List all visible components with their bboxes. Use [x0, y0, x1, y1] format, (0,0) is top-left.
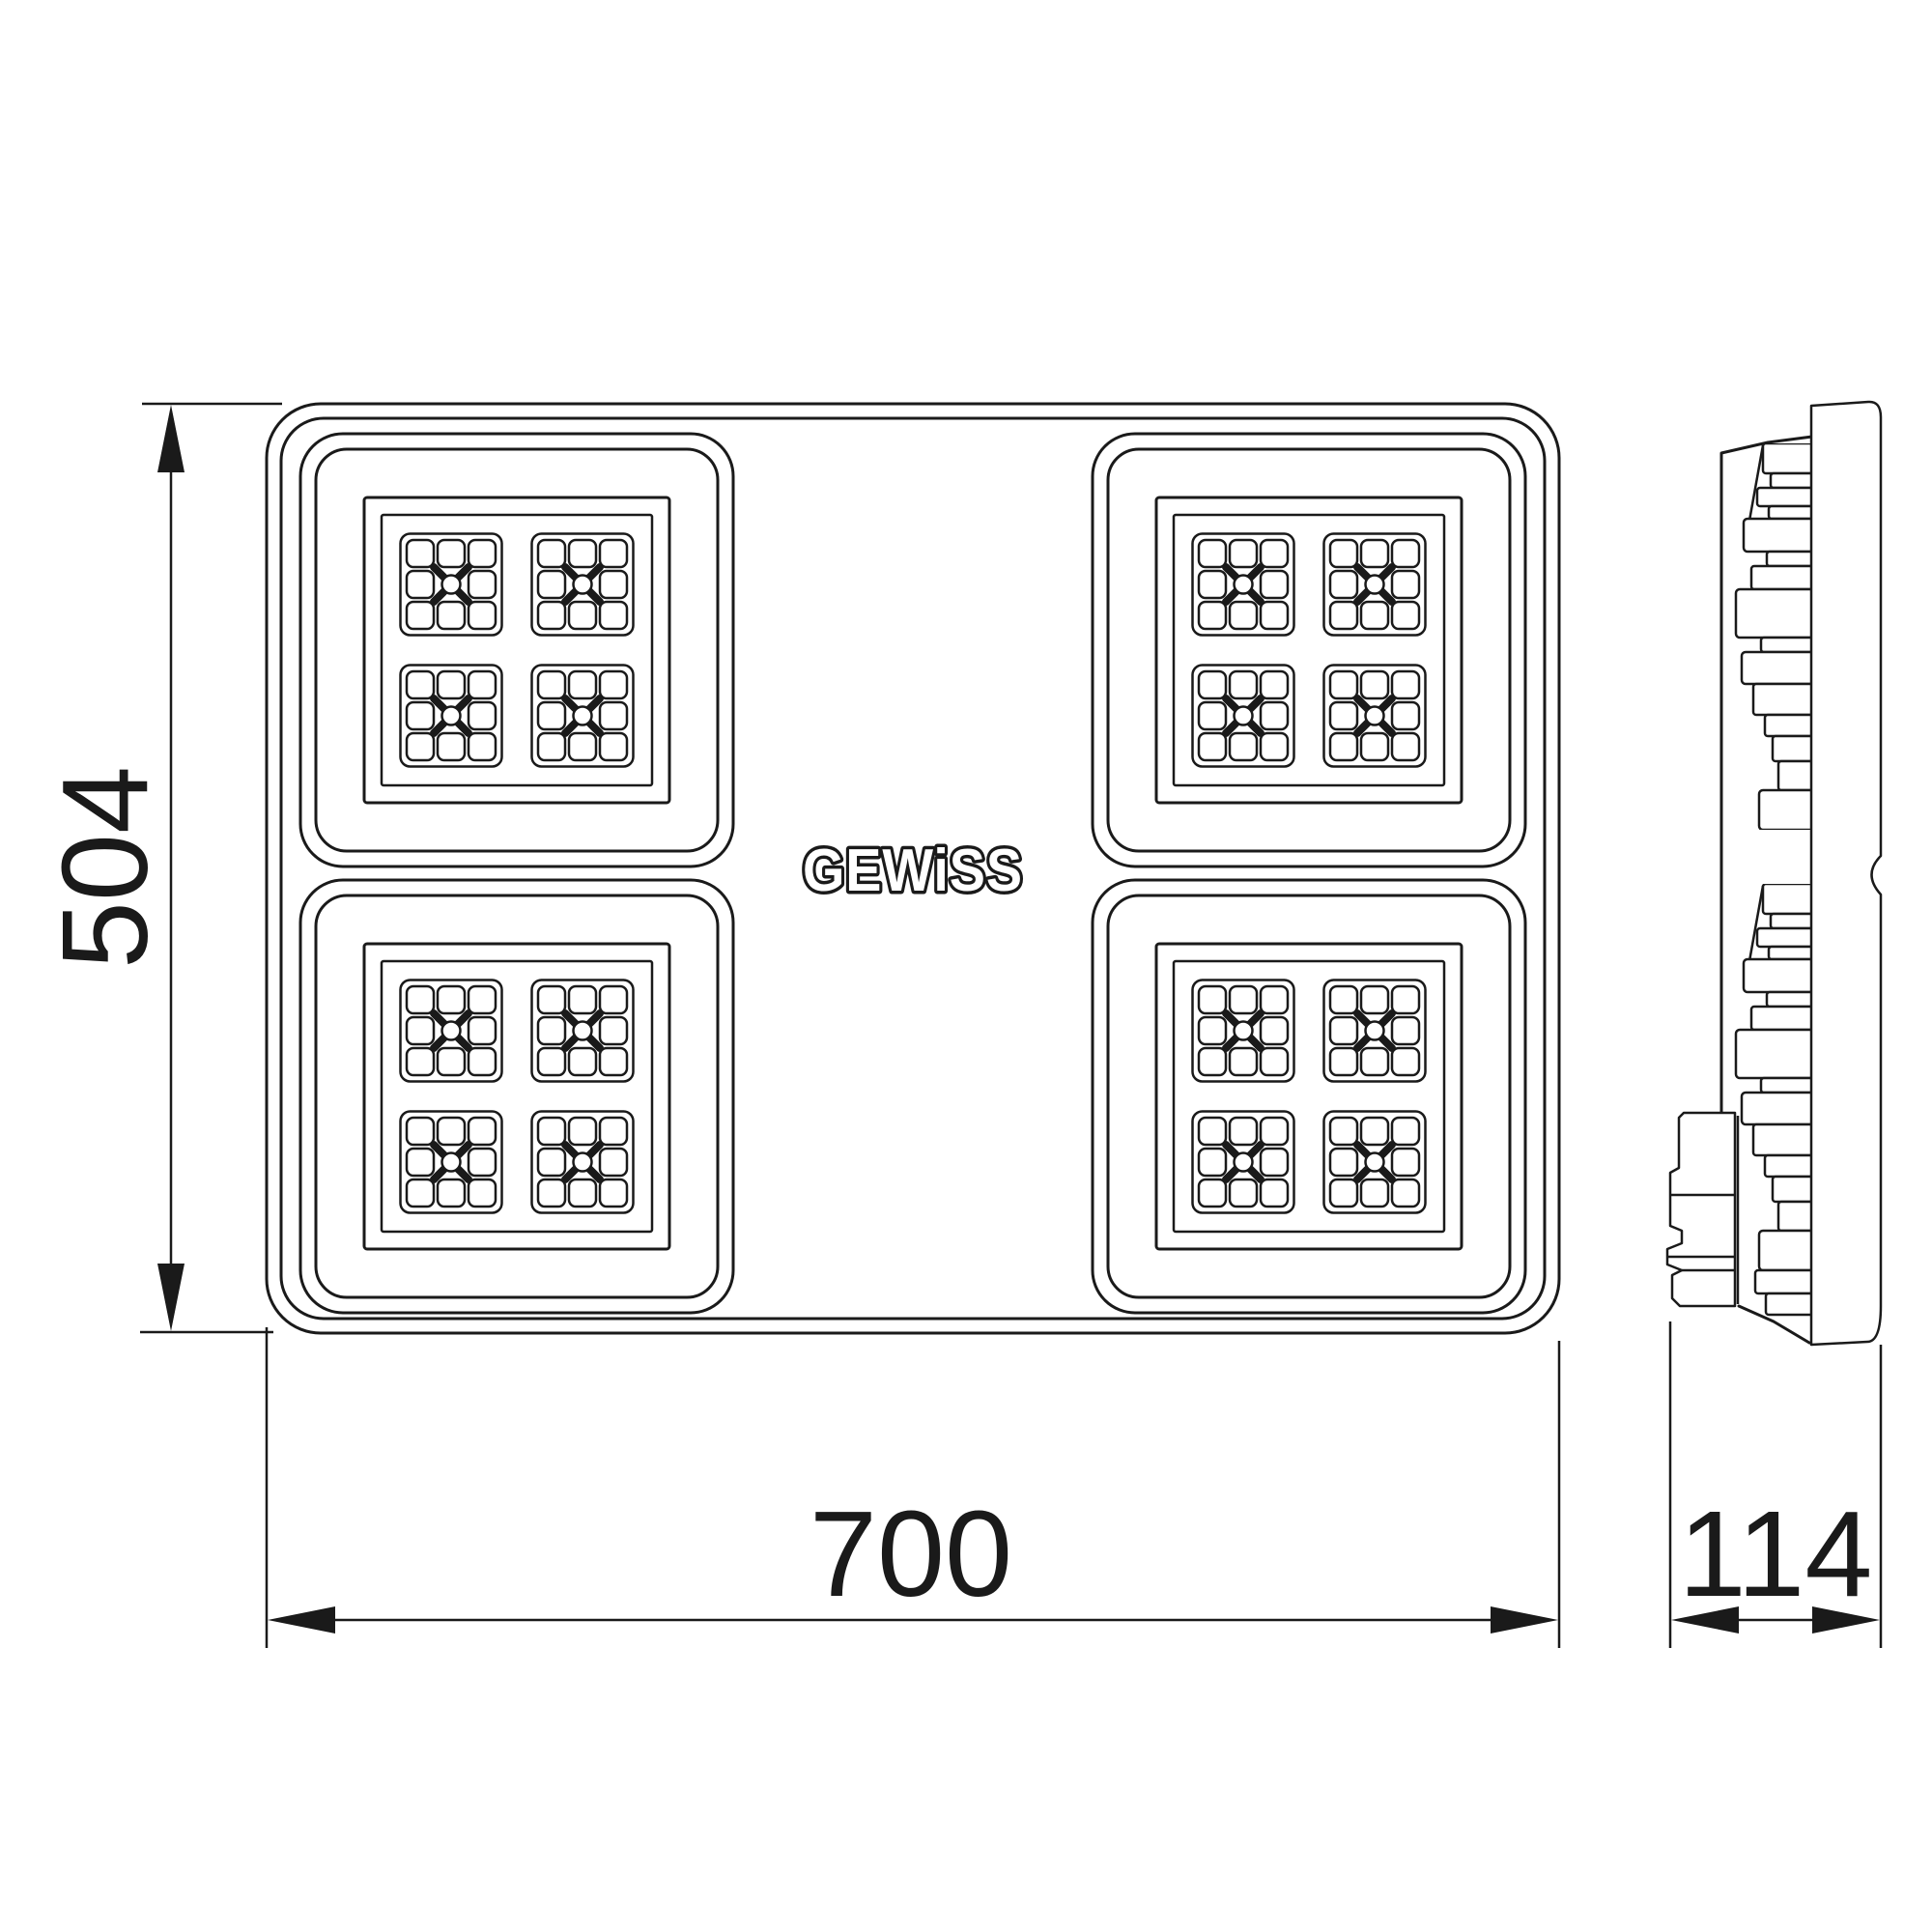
heatsink-fins-lower	[1736, 884, 1815, 1270]
arrowhead-left	[268, 1606, 335, 1634]
led-module-bottom-left	[300, 880, 733, 1313]
dimension-height: 504	[37, 404, 282, 1332]
arrowhead-up	[157, 405, 185, 472]
dimension-width: 700	[267, 1327, 1559, 1648]
front-view: GEWiSS	[267, 404, 1559, 1333]
technical-drawing-page: GEWiSS 504 700	[0, 0, 1932, 1932]
gewiss-logo: GEWiSS	[803, 838, 1023, 904]
floodlight-dimension-drawing: GEWiSS 504 700	[0, 0, 1932, 1932]
arrowhead-down	[157, 1264, 185, 1331]
cable-gland	[1667, 1113, 1735, 1306]
led-module-top-right	[1093, 434, 1525, 867]
arrowhead-right	[1491, 1606, 1558, 1634]
side-view	[1667, 402, 1881, 1345]
dimension-depth: 114	[1670, 1321, 1881, 1648]
heatsink-fin	[1766, 1293, 1815, 1315]
led-module-bottom-right	[1093, 880, 1525, 1313]
depth-dimension-label: 114	[1679, 1486, 1873, 1622]
width-dimension-label: 700	[810, 1486, 1012, 1622]
led-module-top-left	[300, 434, 733, 867]
heatsink-fins-upper	[1736, 443, 1815, 830]
front-plate-profile	[1811, 402, 1881, 1345]
heatsink-fin	[1755, 1270, 1815, 1293]
height-dimension-label: 504	[37, 766, 173, 969]
